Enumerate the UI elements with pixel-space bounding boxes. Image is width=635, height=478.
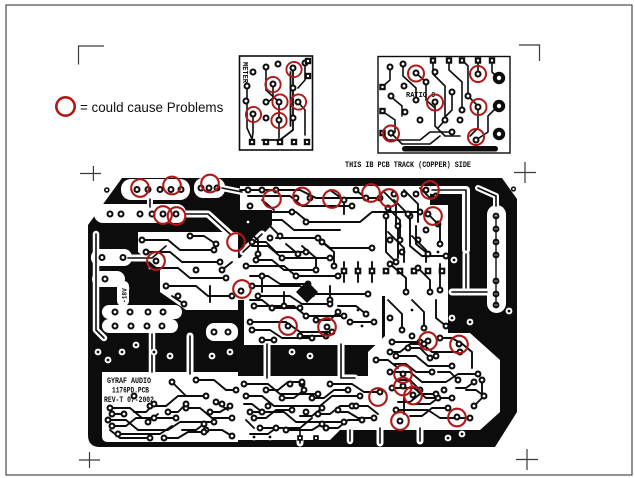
svg-text:METER: METER: [240, 62, 248, 84]
svg-text:THIS IB PCB TRACK (COPPER) SID: THIS IB PCB TRACK (COPPER) SIDE: [345, 161, 471, 170]
svg-text:REV-T 07-2002: REV-T 07-2002: [104, 396, 154, 405]
svg-text:GYRAF AUDIO: GYRAF AUDIO: [107, 376, 151, 386]
svg-text:-18V: -18V: [122, 288, 129, 303]
svg-text:= could cause Problems: = could cause Problems: [80, 100, 224, 115]
svg-text:1176PD.PCB: 1176PD.PCB: [112, 387, 149, 396]
